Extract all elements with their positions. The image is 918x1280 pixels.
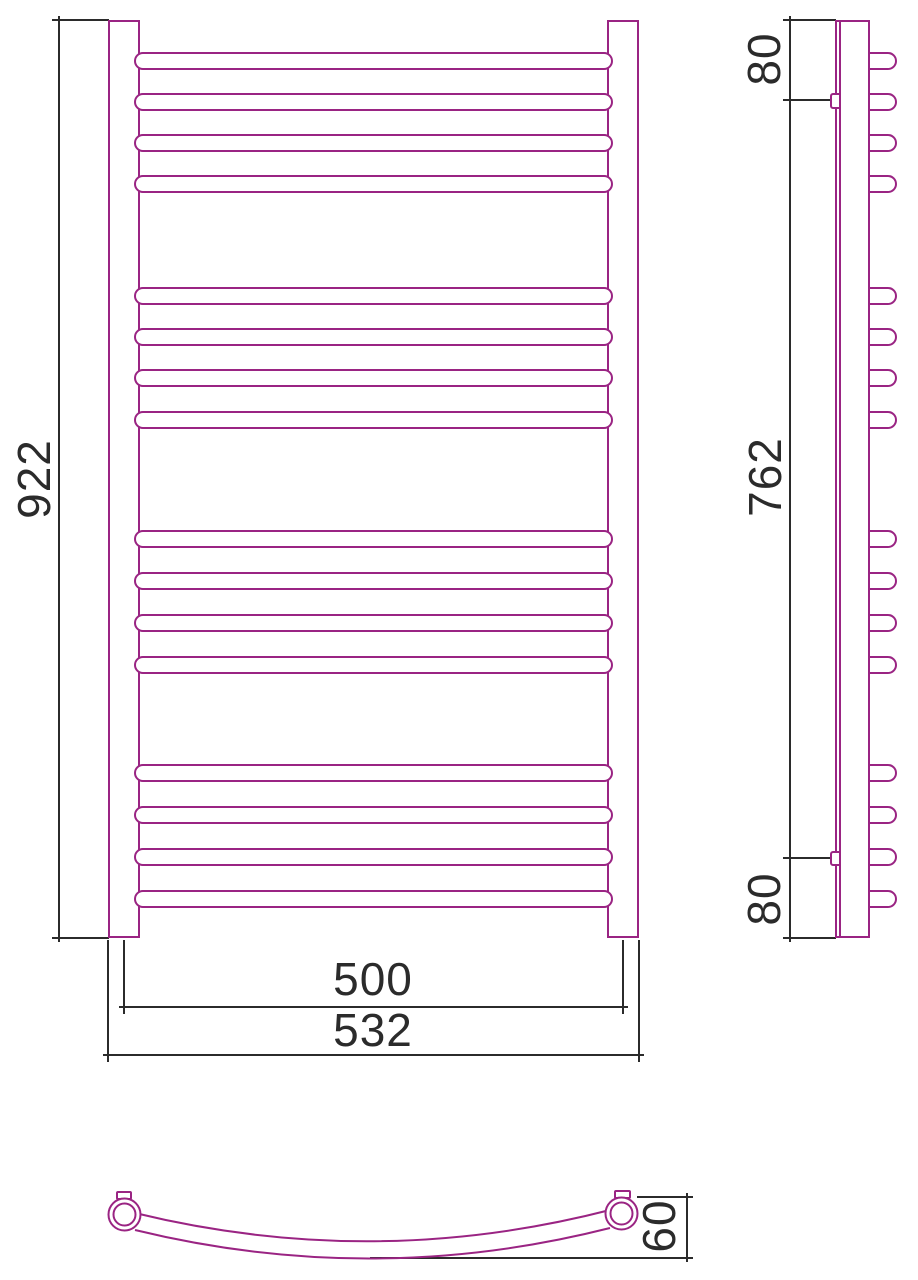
side-rung-end [868, 572, 897, 590]
dim-height-tick-top [52, 19, 109, 21]
side-rung-end [868, 411, 897, 429]
front-post-right [607, 20, 639, 938]
ext-line-center-left [123, 940, 125, 1014]
front-rung [134, 614, 613, 632]
front-rung [134, 764, 613, 782]
side-rung-end [868, 287, 897, 305]
wall-bracket-bottom [830, 851, 841, 866]
dim-side-tick-bracket-bottom [783, 857, 833, 859]
front-rung [134, 656, 613, 674]
side-rung-end [868, 328, 897, 346]
front-rung [134, 848, 613, 866]
post-section-left-inner [114, 1204, 136, 1226]
side-rung-end [868, 93, 897, 111]
dim-overall-width-label: 532 [333, 1007, 413, 1053]
dim-height-label: 922 [11, 439, 57, 519]
dim-depth-label: 60 [636, 1199, 682, 1252]
side-rung-end [868, 656, 897, 674]
post-section-right-inner [611, 1203, 633, 1225]
side-rung-end [868, 175, 897, 193]
dim-bottom-offset-label: 80 [741, 872, 787, 925]
front-rung [134, 572, 613, 590]
dim-top-offset-label: 80 [741, 32, 787, 85]
front-rung [134, 93, 613, 111]
front-rung [134, 175, 613, 193]
curved-rung-drawing [0, 1180, 918, 1280]
front-rung [134, 328, 613, 346]
side-rung-end [868, 530, 897, 548]
dim-axis-width-label: 500 [333, 956, 413, 1002]
side-rung-end [868, 890, 897, 908]
front-rung [134, 411, 613, 429]
front-rung [134, 52, 613, 70]
towel-rail-technical-drawing: 922 500 532 80 762 80 [0, 0, 918, 1280]
dim-height-tick-bottom [52, 937, 109, 939]
front-post-left [108, 20, 140, 938]
front-rung [134, 287, 613, 305]
dim-side-tick-top [783, 19, 836, 21]
curved-rung-back-line [135, 1228, 610, 1259]
dim-side-tick-bottom [783, 937, 836, 939]
ext-line-outer-left [107, 940, 109, 1062]
dim-bracket-spacing-label: 762 [742, 437, 788, 517]
front-rung [134, 134, 613, 152]
dim-side-tick-bracket-top [783, 99, 833, 101]
side-rung-end [868, 369, 897, 387]
wall-bracket-top [830, 93, 841, 109]
front-rung [134, 890, 613, 908]
side-rung-end [868, 764, 897, 782]
front-rung [134, 530, 613, 548]
side-post-face-line [839, 22, 841, 936]
side-rung-end [868, 806, 897, 824]
front-rung [134, 369, 613, 387]
side-rung-end [868, 134, 897, 152]
side-rung-end [868, 614, 897, 632]
side-rung-end [868, 848, 897, 866]
front-rung [134, 806, 613, 824]
ext-line-center-right [622, 940, 624, 1014]
side-rung-end [868, 52, 897, 70]
curved-rung-front-line [135, 1210, 610, 1241]
ext-line-outer-right [638, 940, 640, 1062]
